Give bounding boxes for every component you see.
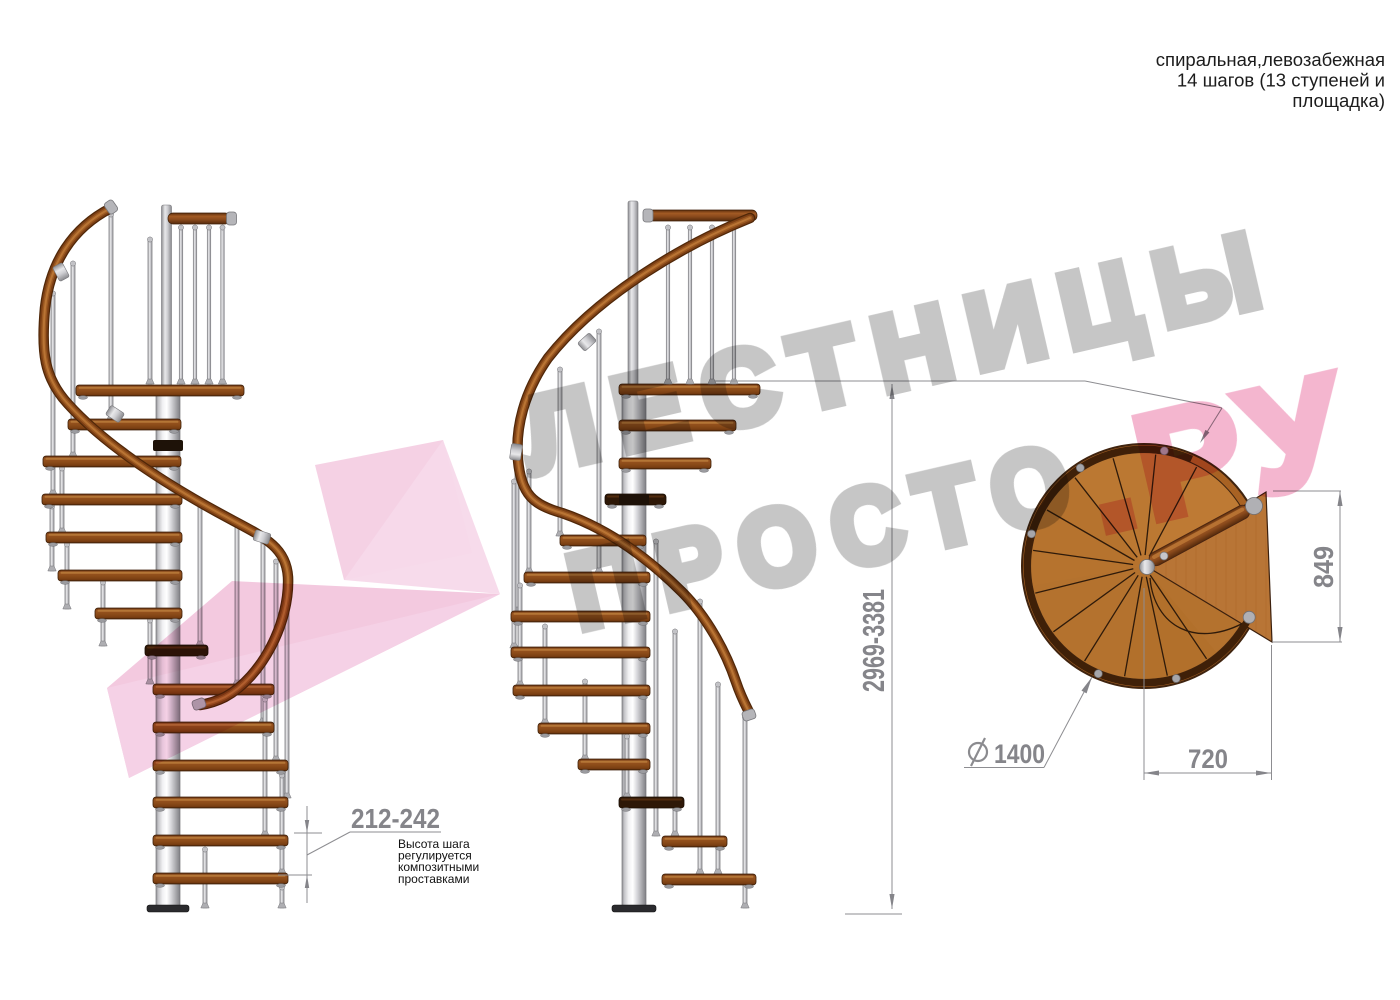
svg-text:Высота шагарегулируетсякомпози: Высота шагарегулируетсякомпозитнымипрост… xyxy=(398,837,479,886)
svg-text:1400: 1400 xyxy=(994,739,1045,769)
svg-text:849: 849 xyxy=(1308,546,1339,588)
svg-text:720: 720 xyxy=(1188,744,1228,774)
svg-text:212-242: 212-242 xyxy=(351,803,440,834)
svg-text:2969-3381: 2969-3381 xyxy=(856,589,891,692)
